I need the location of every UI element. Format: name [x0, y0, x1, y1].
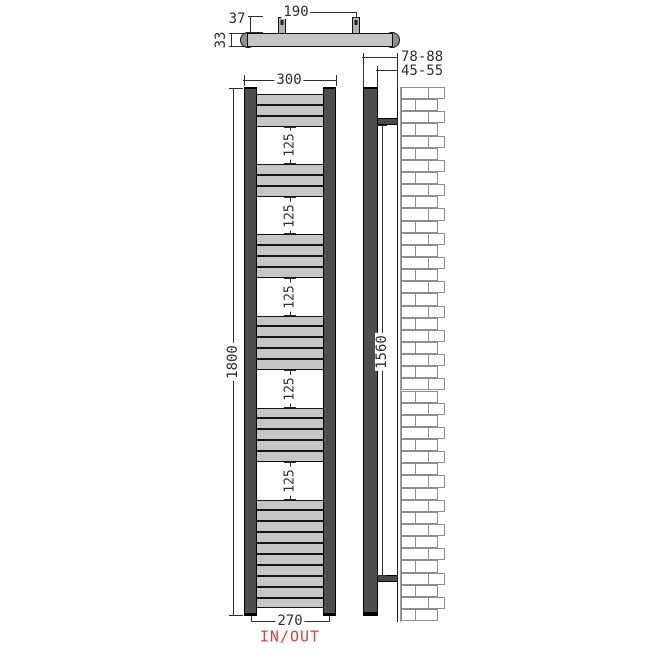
gap-dimension: 125 — [257, 278, 323, 316]
horizontal-tube — [257, 234, 323, 245]
brick-row — [401, 415, 438, 427]
brick-joint — [428, 307, 429, 317]
brick-row — [401, 403, 445, 415]
brick-row — [401, 573, 445, 585]
brick-joint — [415, 222, 416, 232]
brick-joint — [415, 270, 416, 280]
brick-joint — [428, 282, 429, 292]
horizontal-tube — [257, 408, 323, 419]
brick-row — [401, 281, 445, 293]
brick-joint — [428, 379, 429, 389]
brick-row — [401, 366, 438, 378]
gap-dimension: 125 — [257, 370, 323, 408]
brick-joint — [415, 513, 416, 523]
wall-bracket-upper — [377, 118, 398, 125]
dim-line-33 — [231, 33, 232, 47]
gap-dimension-label: 125 — [284, 131, 297, 160]
brick-row — [401, 560, 438, 572]
horizontal-tube — [257, 94, 323, 105]
brick-row — [401, 451, 445, 463]
dim-tick — [284, 370, 296, 371]
brick-row — [401, 293, 438, 305]
brick-row — [401, 597, 445, 609]
horizontal-tube — [257, 587, 323, 598]
horizontal-tube — [257, 175, 323, 186]
brick-joint — [428, 404, 429, 414]
brick-joint — [428, 161, 429, 171]
brick-joint — [415, 537, 416, 547]
brick-row — [401, 257, 445, 269]
brick-row — [401, 548, 445, 560]
wall-bracket-right — [352, 17, 360, 34]
brick-joint — [428, 574, 429, 584]
brick-joint — [428, 452, 429, 462]
dim-ext-line — [363, 53, 364, 87]
brick-joint — [428, 185, 429, 195]
brick-row — [401, 136, 445, 148]
brick-joint — [428, 234, 429, 244]
brick-row — [401, 318, 438, 330]
gap-dimension: 125 — [257, 197, 323, 235]
radiator-rail-left — [244, 87, 257, 616]
horizontal-tube — [257, 429, 323, 440]
brick-row — [401, 609, 438, 621]
dim-tick — [377, 125, 387, 126]
brick-joint — [428, 355, 429, 365]
dim-tick — [356, 12, 357, 18]
brick-row — [401, 488, 438, 500]
wall-face-line — [397, 87, 399, 622]
horizontal-tube — [257, 359, 323, 370]
brick-joint — [415, 440, 416, 450]
brick-row — [401, 99, 438, 111]
brick-joint — [428, 549, 429, 559]
brick-joint — [428, 112, 429, 122]
dim-line-45-55 — [376, 70, 397, 71]
dim-tick — [284, 462, 296, 463]
horizontal-tube — [257, 510, 323, 521]
horizontal-tube — [257, 576, 323, 587]
brick-joint — [428, 331, 429, 341]
horizontal-tube — [257, 326, 323, 337]
dimension-label-270: 270 — [275, 614, 304, 628]
brick-row — [401, 269, 438, 281]
brick-row — [401, 148, 438, 160]
horizontal-tube — [257, 348, 323, 359]
brick-row — [401, 87, 445, 99]
brick-joint — [415, 392, 416, 402]
brick-joint — [428, 525, 429, 535]
brick-row — [401, 524, 445, 536]
brick-joint — [415, 294, 416, 304]
dimension-label-37: 37 — [227, 12, 248, 26]
brick-joint — [415, 416, 416, 426]
dimension-label-33: 33 — [214, 30, 228, 51]
brick-joint — [428, 88, 429, 98]
brick-joint — [415, 610, 416, 620]
brick-row — [401, 233, 445, 245]
brick-row — [401, 221, 438, 233]
horizontal-tube — [257, 565, 323, 576]
horizontal-tube — [257, 186, 323, 197]
horizontal-tube — [257, 116, 323, 127]
brick-wall — [401, 87, 447, 622]
brick-joint — [415, 149, 416, 159]
dim-line-37 — [250, 16, 251, 32]
dimension-label-1560: 1560 — [375, 333, 389, 371]
brick-joint — [428, 476, 429, 486]
gap-dimension-label: 125 — [284, 374, 297, 403]
brick-row — [401, 512, 438, 524]
bracket-screw — [355, 20, 358, 25]
gap-dimension-label: 125 — [284, 201, 297, 230]
brick-row — [401, 172, 438, 184]
dim-tick — [229, 88, 243, 89]
dim-tick — [284, 197, 296, 198]
brick-row — [401, 184, 445, 196]
dim-tick — [251, 616, 252, 622]
dim-tick — [284, 127, 296, 128]
bracket-screw — [281, 20, 284, 25]
brick-row — [401, 536, 438, 548]
horizontal-tube — [257, 337, 323, 348]
horizontal-tube — [257, 451, 323, 462]
horizontal-tube — [257, 245, 323, 256]
brick-joint — [415, 489, 416, 499]
horizontal-tube — [257, 521, 323, 532]
horizontal-tube — [257, 164, 323, 175]
dim-tick — [248, 32, 263, 33]
horizontal-tube — [257, 532, 323, 543]
dimension-label-45-55: 45-55 — [400, 64, 444, 78]
dimension-label-1800: 1800 — [226, 343, 240, 381]
brick-joint — [415, 319, 416, 329]
brick-row — [401, 500, 445, 512]
gap-dimension-label: 125 — [284, 466, 297, 495]
brick-joint — [428, 209, 429, 219]
brick-joint — [428, 137, 429, 147]
brick-joint — [415, 367, 416, 377]
dim-tick — [244, 75, 245, 86]
dim-tick — [336, 75, 337, 86]
dimension-label-190: 190 — [281, 5, 310, 19]
brick-row — [401, 123, 438, 135]
horizontal-tube — [257, 543, 323, 554]
technical-drawing-canvas: 190 37 33 125125125125125 300 1800 270 I… — [0, 0, 650, 650]
gap-dimension: 125 — [257, 462, 323, 500]
inout-label: IN/OUT — [260, 630, 320, 645]
brick-row — [401, 378, 445, 390]
brick-row — [401, 342, 438, 354]
gap-dimension: 125 — [257, 127, 323, 165]
dim-line-78-88 — [362, 57, 397, 58]
horizontal-tube — [257, 105, 323, 116]
brick-row — [401, 439, 438, 451]
brick-joint — [428, 258, 429, 268]
horizontal-tube — [257, 256, 323, 267]
brick-row — [401, 111, 445, 123]
brick-joint — [415, 586, 416, 596]
brick-joint — [415, 561, 416, 571]
brick-row — [401, 306, 445, 318]
brick-joint — [415, 246, 416, 256]
brick-joint — [415, 197, 416, 207]
radiator-rail-right — [323, 87, 336, 616]
horizontal-tube — [257, 316, 323, 327]
dimension-label-300: 300 — [274, 73, 303, 87]
brick-row — [401, 245, 438, 257]
brick-joint — [415, 124, 416, 134]
tube-bars: 125125125125125 — [257, 87, 323, 616]
gap-dimension-label: 125 — [284, 282, 297, 311]
wall-bracket-lower — [377, 575, 398, 582]
brick-joint — [428, 501, 429, 511]
brick-joint — [415, 343, 416, 353]
brick-joint — [428, 428, 429, 438]
dim-tick — [284, 278, 296, 279]
brick-row — [401, 475, 445, 487]
brick-row — [401, 160, 445, 172]
dim-tick — [329, 616, 330, 622]
brick-row — [401, 208, 445, 220]
brick-row — [401, 196, 438, 208]
brick-joint — [415, 173, 416, 183]
brick-row — [401, 354, 445, 366]
brick-row — [401, 463, 438, 475]
brick-row — [401, 391, 438, 403]
brick-row — [401, 330, 445, 342]
horizontal-tube — [257, 554, 323, 565]
horizontal-tube — [257, 267, 323, 278]
radiator-top-profile — [247, 33, 393, 47]
horizontal-tube — [257, 598, 323, 609]
brick-row — [401, 427, 445, 439]
brick-joint — [415, 100, 416, 110]
dim-tick — [377, 575, 387, 576]
horizontal-tube — [257, 500, 323, 511]
brick-joint — [415, 464, 416, 474]
dim-tick — [229, 615, 243, 616]
horizontal-tube — [257, 418, 323, 429]
horizontal-tube — [257, 440, 323, 451]
brick-joint — [428, 598, 429, 608]
brick-row — [401, 585, 438, 597]
